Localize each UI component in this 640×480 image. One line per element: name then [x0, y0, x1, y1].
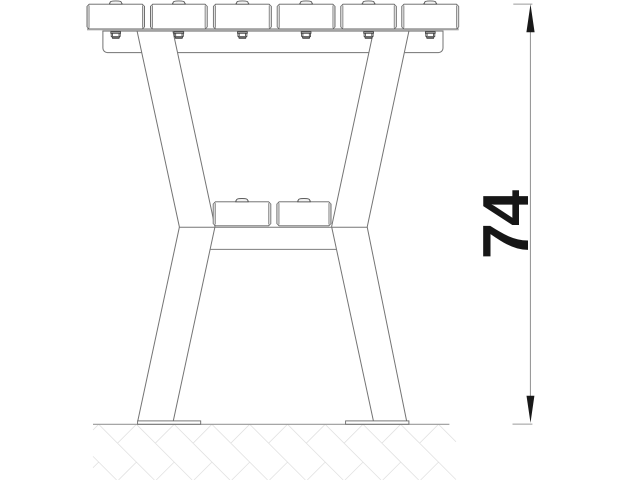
svg-text:74: 74: [469, 190, 542, 259]
